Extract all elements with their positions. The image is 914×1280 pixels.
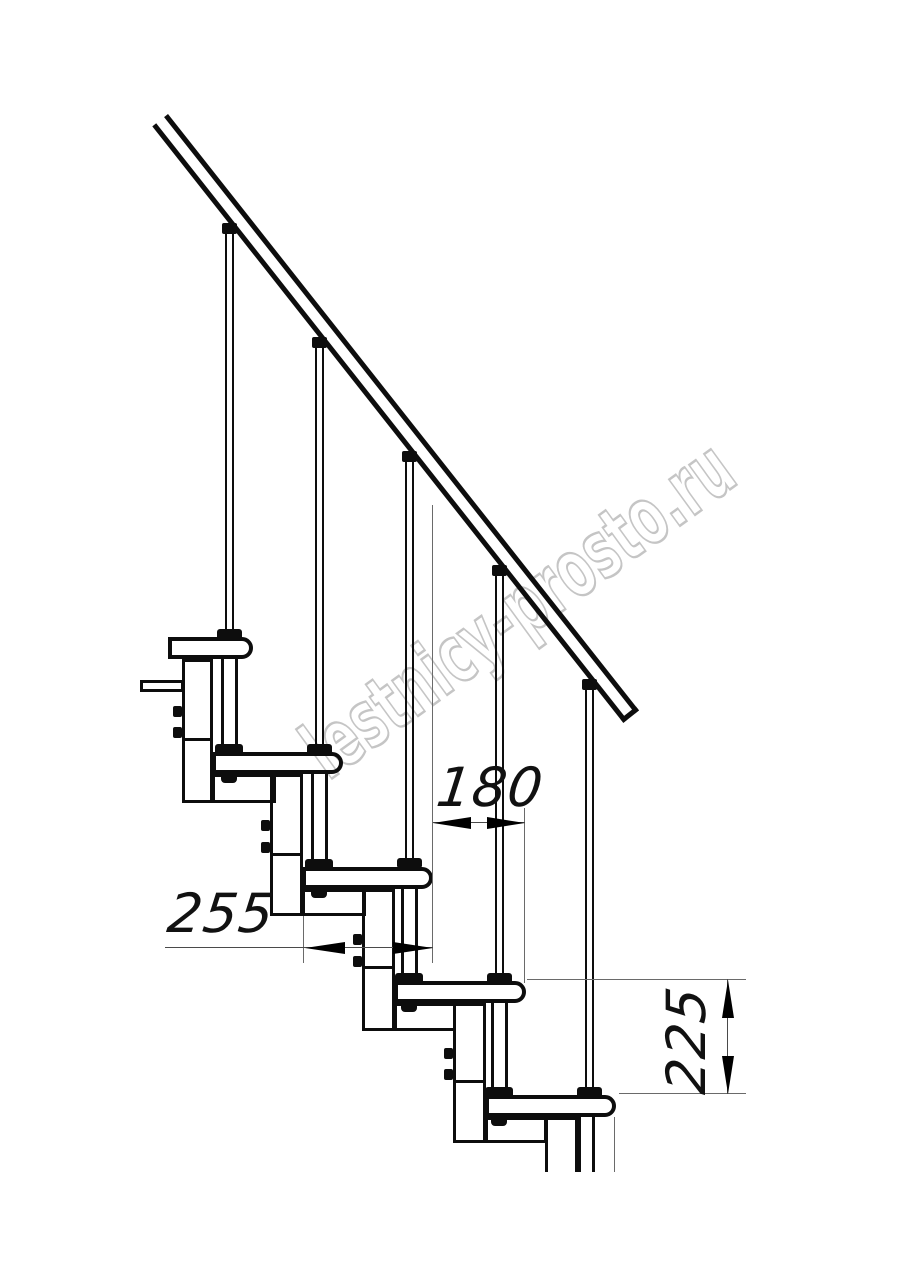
support-tube <box>221 659 238 752</box>
baluster <box>315 348 324 744</box>
support-tube <box>401 889 418 981</box>
baluster <box>405 462 414 858</box>
edge-line <box>614 1117 615 1172</box>
module-bolt <box>173 727 182 738</box>
module-column <box>182 659 213 803</box>
module-column <box>453 1003 486 1143</box>
module-bolt <box>261 820 270 831</box>
support-tube-cutoff <box>578 1117 595 1172</box>
tube-nut <box>221 775 237 783</box>
module-bolt <box>353 956 362 967</box>
wall-bracket <box>140 680 184 692</box>
module-joint <box>182 738 213 741</box>
module-joint <box>453 1080 486 1083</box>
module-column <box>362 889 395 1031</box>
module-bolt <box>261 842 270 853</box>
module-bolt <box>444 1069 453 1080</box>
module-column-cutoff <box>545 1117 578 1172</box>
dimension-label: 225 <box>641 988 731 1091</box>
arrowhead-left <box>305 942 345 954</box>
module-bolt <box>353 934 362 945</box>
arrowhead-right <box>393 942 433 954</box>
tread <box>302 867 433 889</box>
baluster-tread-flange <box>397 858 422 867</box>
dimension-label: 180 <box>433 756 547 819</box>
baluster <box>225 234 234 629</box>
module-bolt <box>173 706 182 717</box>
tread <box>394 981 526 1003</box>
stair-technical-drawing: lestnicy-prosto.ru <box>0 0 914 1280</box>
module-bolt <box>444 1048 453 1059</box>
extension-line <box>527 979 746 980</box>
tread <box>168 637 253 659</box>
tube-nut <box>491 1118 507 1126</box>
module-joint <box>362 966 395 969</box>
extension-line <box>432 505 433 963</box>
tread <box>212 752 343 774</box>
extension-line <box>303 916 304 963</box>
tread <box>485 1095 616 1117</box>
dimension-label: 255 <box>164 882 278 945</box>
support-tube <box>491 1003 508 1095</box>
module-joint <box>270 853 303 856</box>
extension-line <box>524 808 525 983</box>
baluster <box>585 690 594 1087</box>
tube-nut <box>401 1004 417 1012</box>
tube-nut <box>311 890 327 898</box>
support-tube <box>311 774 328 867</box>
